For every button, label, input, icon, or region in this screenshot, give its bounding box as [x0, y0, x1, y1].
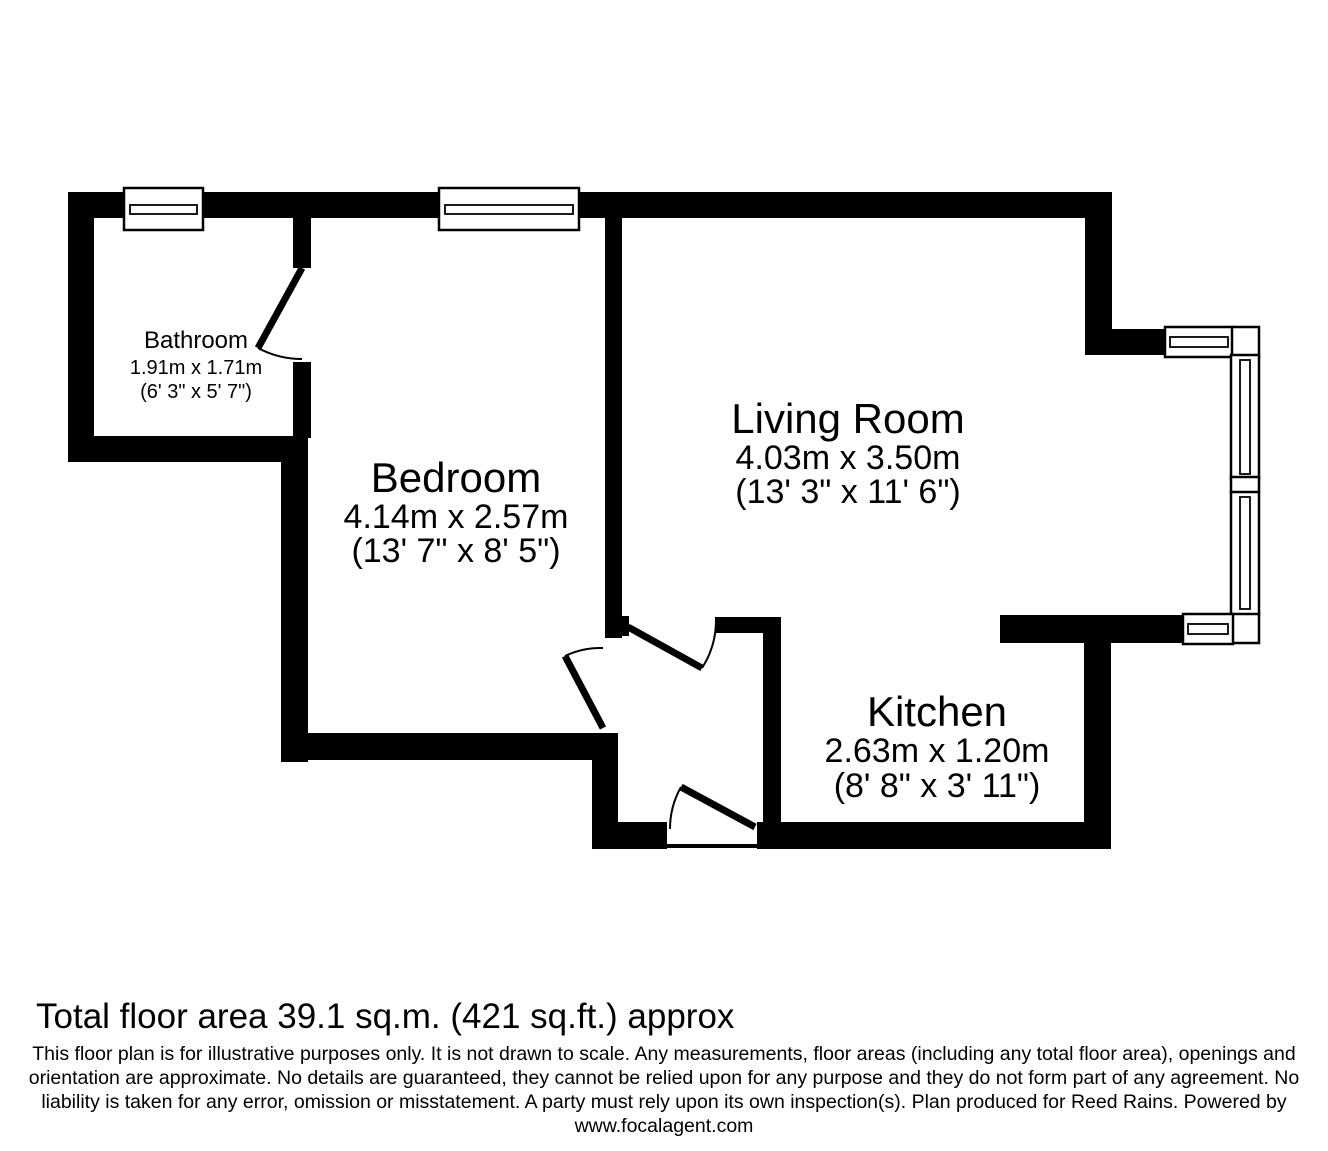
bathroom-window — [124, 188, 203, 230]
floor-plan-page: Bathroom 1.91m x 1.71m (6' 3" x 5' 7") B… — [0, 0, 1328, 1151]
bathroom-door — [258, 268, 302, 359]
kitchen-top-stub-wall — [715, 617, 781, 633]
bedroom-bottom-wall — [281, 733, 618, 760]
bay-corner-post-bottom — [1232, 612, 1259, 643]
floor-plan-drawing: Bathroom 1.91m x 1.71m (6' 3" x 5' 7") B… — [0, 0, 1328, 980]
bathroom-label: Bathroom 1.91m x 1.71m (6' 3" x 5' 7") — [130, 327, 262, 403]
divider-bottom-nub — [616, 616, 629, 636]
living-room-name: Living Room — [731, 395, 964, 442]
bay-window-right-upper — [1231, 355, 1259, 479]
bottom-wall-right-of-entrance — [757, 822, 1111, 849]
bay-corner-post-top — [1232, 327, 1259, 357]
left-outer-wall — [68, 192, 94, 462]
bathroom-dim-imperial: (6' 3" x 5' 7") — [140, 381, 252, 403]
kitchen-left-wall — [763, 617, 781, 822]
bay-top-return-wall — [1085, 329, 1169, 355]
bay-window-right-lower — [1231, 492, 1259, 614]
bathroom-bottom-wall — [68, 436, 308, 462]
living-room-label: Living Room 4.03m x 3.50m (13' 3" x 11' … — [731, 395, 964, 511]
bedroom-label: Bedroom 4.14m x 2.57m (13' 7" x 8' 5") — [344, 454, 569, 570]
top-wall — [68, 192, 1112, 218]
bathroom-dim-metric: 1.91m x 1.71m — [130, 357, 262, 379]
bedroom-living-divider-wall — [605, 218, 622, 638]
bedroom-window — [439, 188, 579, 230]
living-room-dim-metric: 4.03m x 3.50m — [736, 439, 961, 477]
bedroom-name: Bedroom — [371, 454, 541, 501]
total-floor-area: Total floor area 39.1 sq.m. (421 sq.ft.)… — [36, 997, 734, 1037]
bathroom-right-wall-upper — [293, 218, 311, 268]
disclaimer: This floor plan is for illustrative purp… — [0, 1042, 1328, 1138]
kitchen-label: Kitchen 2.63m x 1.20m (8' 8" x 3' 11") — [825, 688, 1050, 805]
bay-window-bottom — [1183, 614, 1233, 644]
bay-window-top — [1165, 327, 1233, 357]
bedroom-dim-metric: 4.14m x 2.57m — [344, 498, 569, 536]
disclaimer-line-1: This floor plan is for illustrative purp… — [0, 1042, 1328, 1066]
bathroom-name: Bathroom — [144, 327, 248, 354]
living-room-door — [628, 622, 716, 668]
entrance-door — [667, 787, 757, 846]
disclaimer-line-4: www.focalagent.com — [0, 1114, 1328, 1138]
kitchen-dim-metric: 2.63m x 1.20m — [825, 732, 1050, 770]
disclaimer-line-2: orientation are approximate. No details … — [0, 1066, 1328, 1090]
kitchen-dim-imperial: (8' 8" x 3' 11") — [834, 767, 1041, 805]
living-room-dim-imperial: (13' 3" x 11' 6") — [735, 473, 960, 511]
bottom-wall-left-of-entrance — [592, 822, 667, 849]
bathroom-right-wall-lower — [293, 362, 311, 438]
bedroom-dim-imperial: (13' 7" x 8' 5") — [351, 532, 560, 570]
bedroom-left-wall — [281, 436, 308, 762]
bedroom-door — [565, 648, 603, 728]
bay-window-mullion — [1231, 477, 1259, 493]
kitchen-name: Kitchen — [867, 688, 1007, 735]
disclaimer-line-3: liability is taken for any error, omissi… — [0, 1090, 1328, 1114]
kitchen-right-outer-wall — [1084, 630, 1111, 849]
